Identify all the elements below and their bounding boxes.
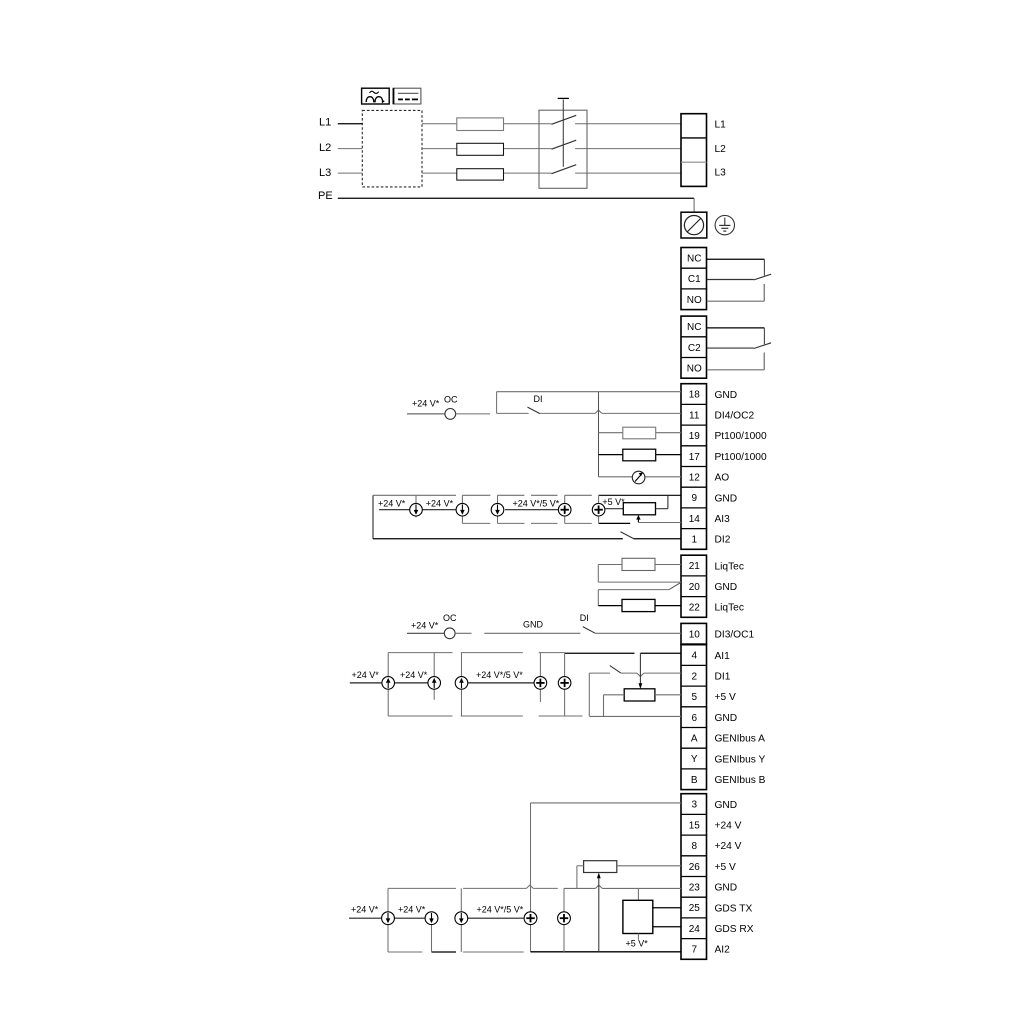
svg-text:23: 23 xyxy=(689,882,701,893)
svg-text:+5 V: +5 V xyxy=(715,862,736,873)
svg-text:1: 1 xyxy=(691,535,697,546)
svg-text:+24 V*: +24 V* xyxy=(426,499,454,509)
svg-text:20: 20 xyxy=(689,582,701,593)
svg-text:GND: GND xyxy=(715,713,738,724)
svg-text:+24 V*/5 V*: +24 V*/5 V* xyxy=(476,670,523,680)
svg-text:+24 V*: +24 V* xyxy=(351,905,379,915)
svg-text:+24 V*/5 V*: +24 V*/5 V* xyxy=(477,905,524,915)
svg-text:C1: C1 xyxy=(688,274,701,285)
svg-text:DI2: DI2 xyxy=(715,535,731,546)
svg-text:OC: OC xyxy=(443,613,457,623)
svg-text:GDS RX: GDS RX xyxy=(715,924,754,935)
svg-text:NO: NO xyxy=(687,295,702,306)
svg-text:14: 14 xyxy=(689,514,701,525)
svg-text:15: 15 xyxy=(689,820,701,831)
svg-text:L3: L3 xyxy=(319,167,331,179)
svg-text:DI: DI xyxy=(534,394,543,404)
svg-text:21: 21 xyxy=(689,561,701,572)
svg-text:+5 V*: +5 V* xyxy=(626,939,649,949)
svg-text:AI3: AI3 xyxy=(715,514,731,525)
svg-text:+24 V*: +24 V* xyxy=(412,399,440,409)
svg-text:18: 18 xyxy=(689,390,701,401)
svg-text:+24 V: +24 V xyxy=(715,841,742,852)
svg-text:B: B xyxy=(691,775,698,786)
svg-text:AO: AO xyxy=(715,473,730,484)
svg-text:+24 V*/5 V*: +24 V*/5 V* xyxy=(513,499,560,509)
svg-text:3: 3 xyxy=(691,800,697,811)
svg-text:+24 V*: +24 V* xyxy=(400,670,428,680)
svg-text:NC: NC xyxy=(687,253,701,264)
svg-text:+24 V*: +24 V* xyxy=(378,499,406,509)
svg-text:L1: L1 xyxy=(319,117,331,129)
svg-text:5: 5 xyxy=(691,692,697,703)
svg-text:L3: L3 xyxy=(715,167,727,178)
svg-text:LiqTec: LiqTec xyxy=(715,561,744,572)
svg-text:GND: GND xyxy=(715,493,738,504)
svg-text:7: 7 xyxy=(691,945,697,956)
svg-text:GND: GND xyxy=(523,619,544,629)
svg-text:DI4/OC2: DI4/OC2 xyxy=(715,410,755,421)
svg-text:22: 22 xyxy=(689,603,701,614)
svg-text:NO: NO xyxy=(687,363,702,374)
svg-text:+24 V*: +24 V* xyxy=(398,905,426,915)
svg-text:L1: L1 xyxy=(715,119,727,130)
svg-text:9: 9 xyxy=(691,493,697,504)
svg-text:11: 11 xyxy=(689,410,700,421)
svg-text:GENIbus Y: GENIbus Y xyxy=(715,754,766,765)
svg-text:+5 V*: +5 V* xyxy=(602,497,625,507)
svg-text:10: 10 xyxy=(689,629,701,640)
svg-text:26: 26 xyxy=(689,862,701,873)
svg-text:DI3/OC1: DI3/OC1 xyxy=(715,629,755,640)
svg-text:GND: GND xyxy=(715,883,738,894)
svg-text:LiqTec: LiqTec xyxy=(715,603,744,614)
svg-text:19: 19 xyxy=(689,431,701,442)
svg-text:NC: NC xyxy=(687,322,701,333)
svg-text:DI1: DI1 xyxy=(715,671,731,682)
svg-text:17: 17 xyxy=(689,452,701,463)
svg-text:AI1: AI1 xyxy=(715,651,731,662)
svg-text:GND: GND xyxy=(715,390,738,401)
svg-text:DI: DI xyxy=(580,613,589,623)
svg-text:8: 8 xyxy=(691,841,697,852)
svg-text:+5 V: +5 V xyxy=(715,692,736,703)
svg-text:GND: GND xyxy=(715,800,738,811)
svg-text:12: 12 xyxy=(689,472,701,483)
svg-text:2: 2 xyxy=(691,671,697,682)
svg-text:+24 V*: +24 V* xyxy=(352,670,380,680)
svg-text:L2: L2 xyxy=(319,142,331,154)
svg-text:L2: L2 xyxy=(715,144,727,155)
svg-text:GDS TX: GDS TX xyxy=(715,903,753,914)
svg-text:A: A xyxy=(691,733,698,744)
svg-text:Pt100/1000: Pt100/1000 xyxy=(715,431,767,442)
svg-text:25: 25 xyxy=(689,903,701,914)
svg-text:GENIbus A: GENIbus A xyxy=(715,734,766,745)
svg-text:PE: PE xyxy=(318,190,333,202)
svg-text:GND: GND xyxy=(715,582,738,593)
svg-text:OC: OC xyxy=(444,394,458,404)
svg-text:AI2: AI2 xyxy=(715,945,731,956)
svg-text:GENIbus B: GENIbus B xyxy=(715,775,766,786)
svg-text:24: 24 xyxy=(689,924,701,935)
svg-text:+24 V: +24 V xyxy=(715,820,742,831)
svg-text:C2: C2 xyxy=(688,343,701,354)
svg-text:+24 V*: +24 V* xyxy=(411,621,439,631)
svg-text:6: 6 xyxy=(691,713,697,724)
svg-text:4: 4 xyxy=(691,651,697,662)
svg-text:Y: Y xyxy=(691,754,698,765)
svg-text:Pt100/1000: Pt100/1000 xyxy=(715,452,767,463)
